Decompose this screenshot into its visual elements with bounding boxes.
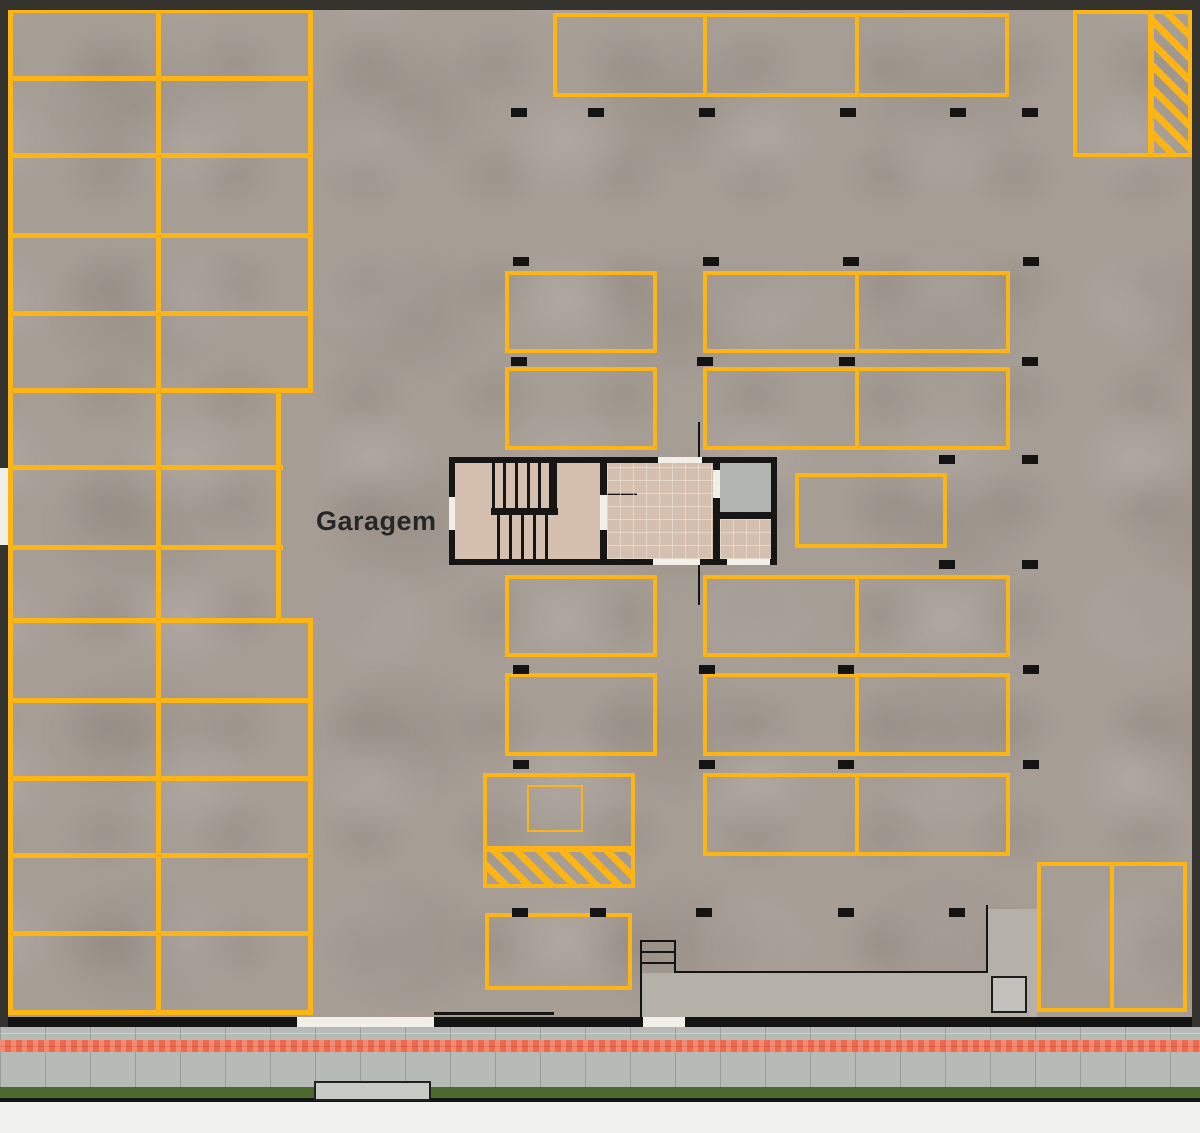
openings-layer	[0, 0, 1200, 1133]
wall-opening	[449, 497, 455, 530]
wall-opening	[297, 1017, 434, 1027]
wall-opening	[0, 468, 8, 545]
room-label-garagem: Garagem	[316, 506, 437, 537]
wall-opening	[643, 1017, 685, 1027]
wall-opening	[727, 559, 770, 565]
wall-opening	[653, 559, 700, 565]
floor-plan-canvas: Garagem	[0, 0, 1200, 1133]
wall-opening	[658, 457, 702, 463]
